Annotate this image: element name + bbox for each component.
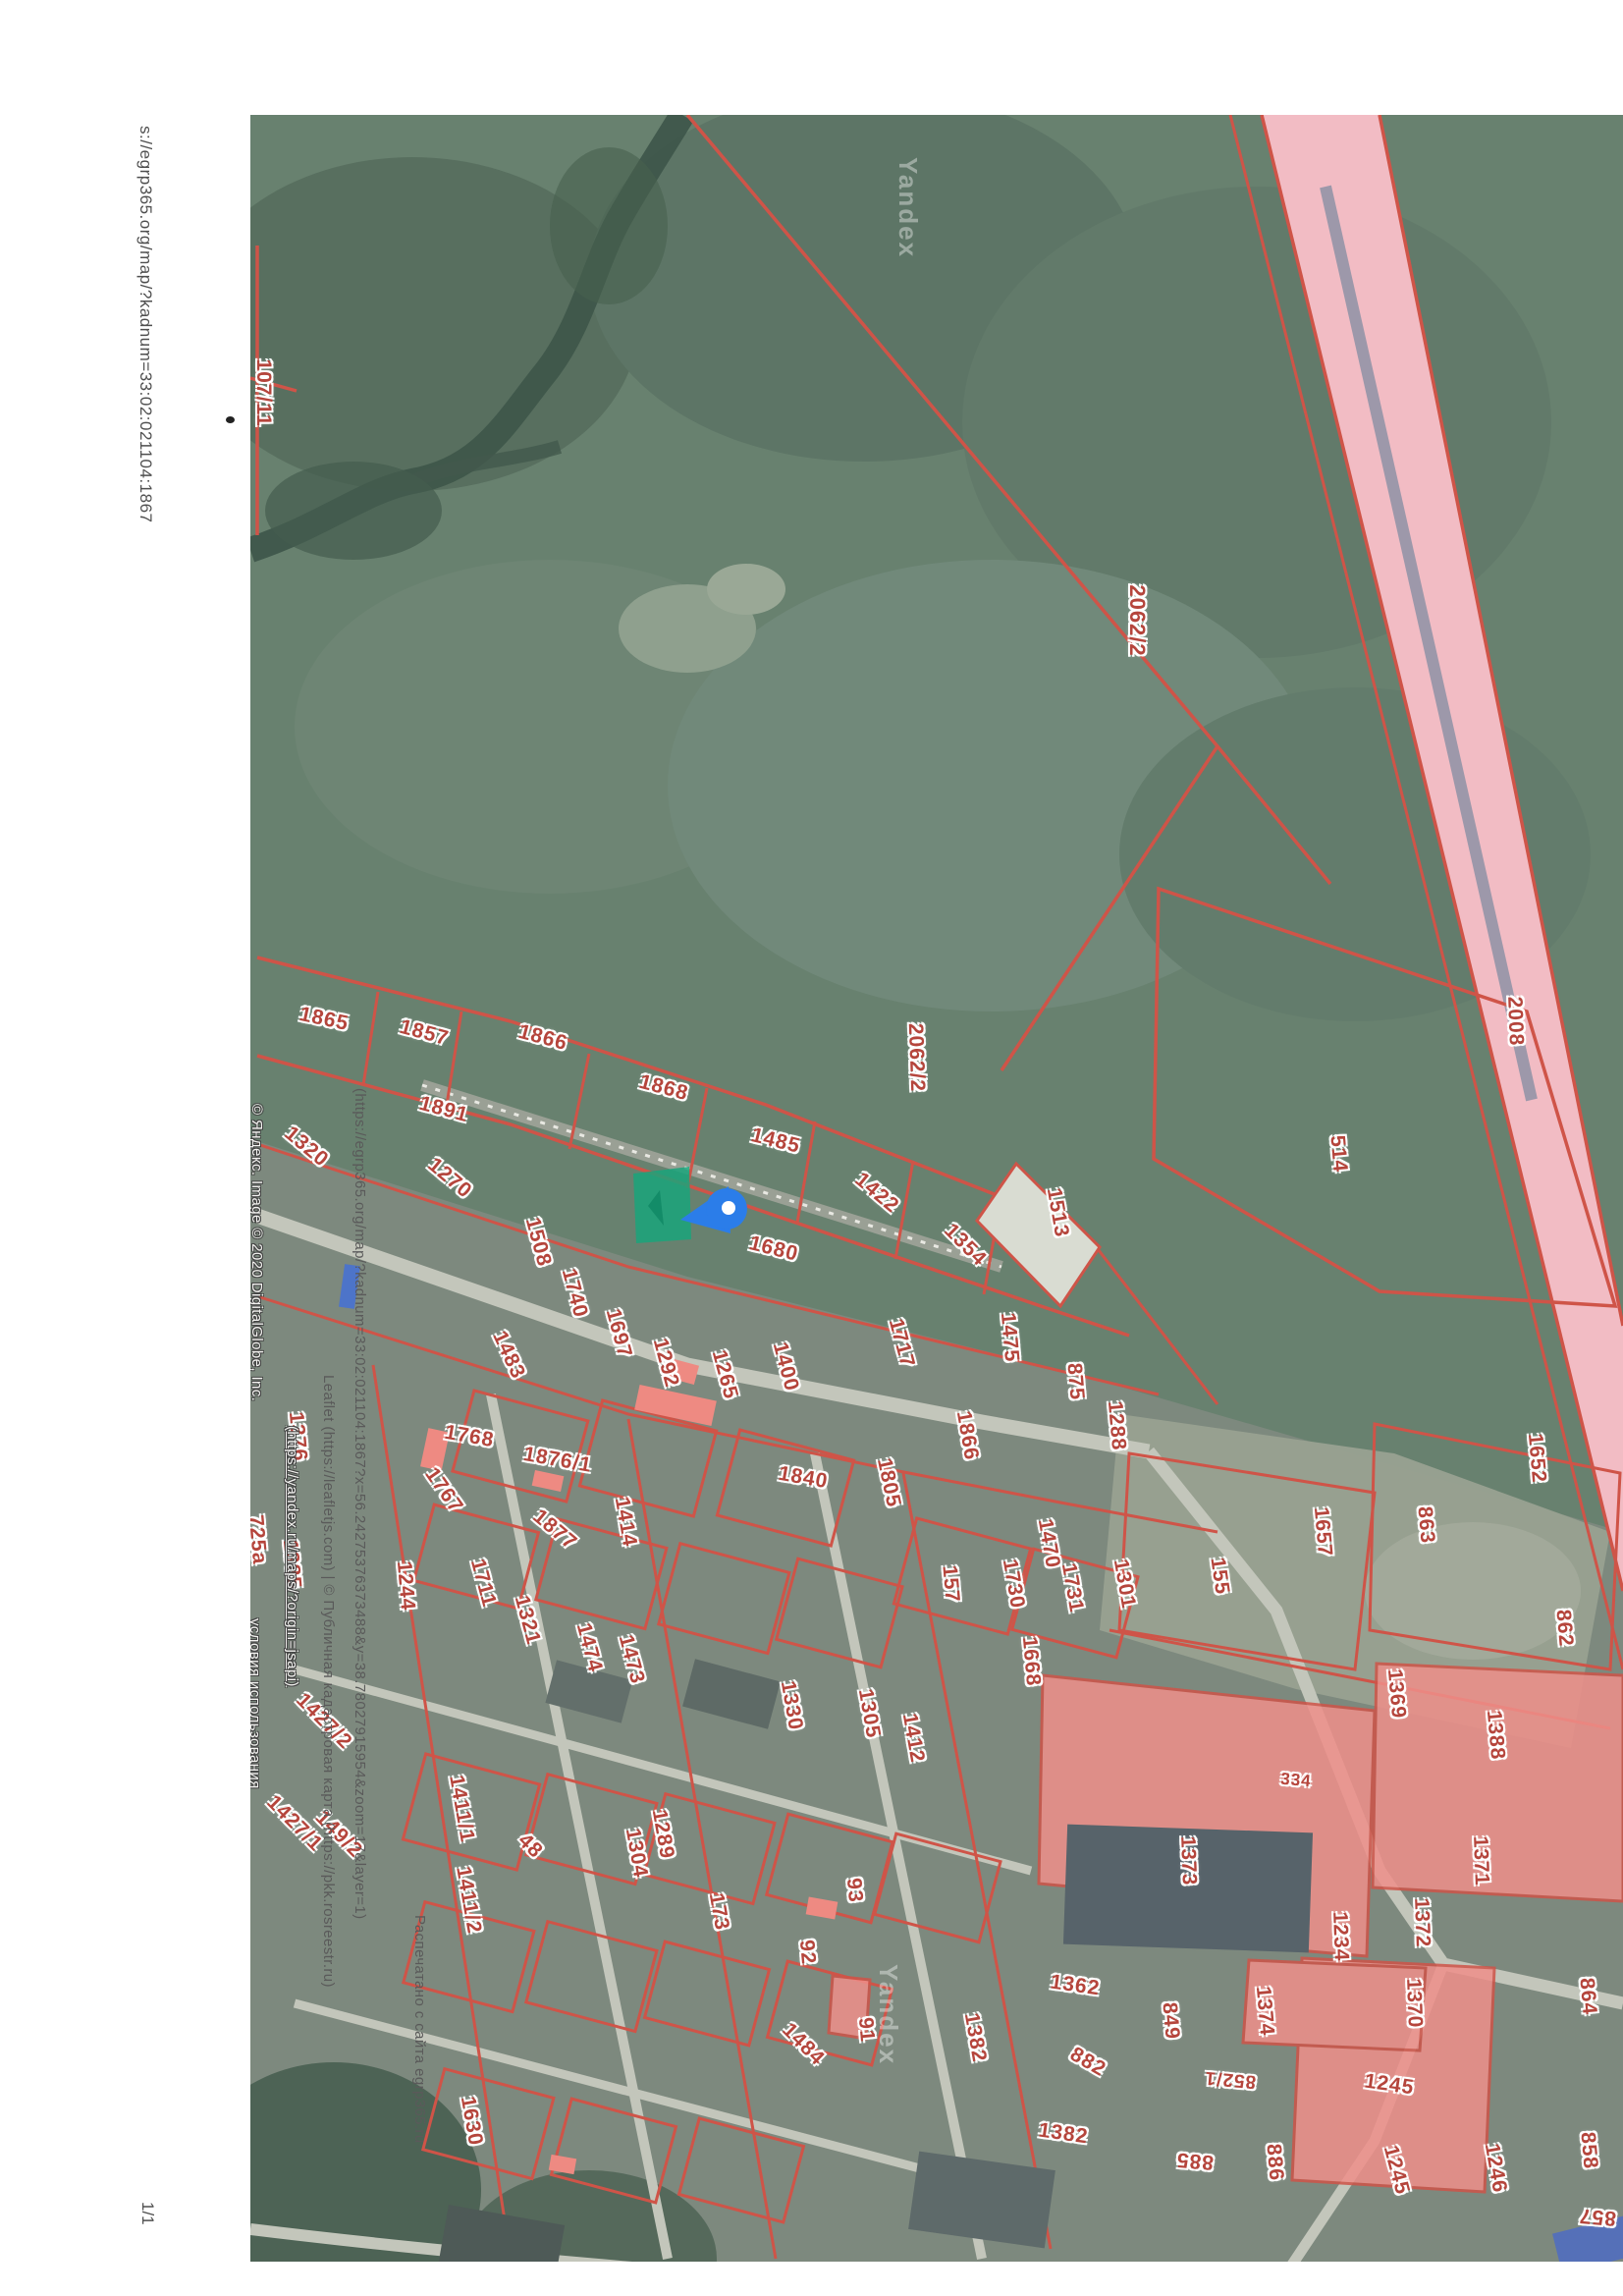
satellite-map-graphic: [250, 115, 1623, 2262]
printed-page: s://egrp365.org/map/?kadnum=33:02:021104…: [0, 0, 1623, 2296]
cadastral-map: 107/1118651857186618681891148516802062/2…: [250, 115, 1623, 2262]
page-indicator: 1/1: [137, 2202, 157, 2225]
selected-parcel: [633, 1167, 691, 1243]
ink-dot: [226, 416, 235, 423]
print-footer-url: s://egrp365.org/map/?kadnum=33:02:021104…: [135, 126, 155, 523]
